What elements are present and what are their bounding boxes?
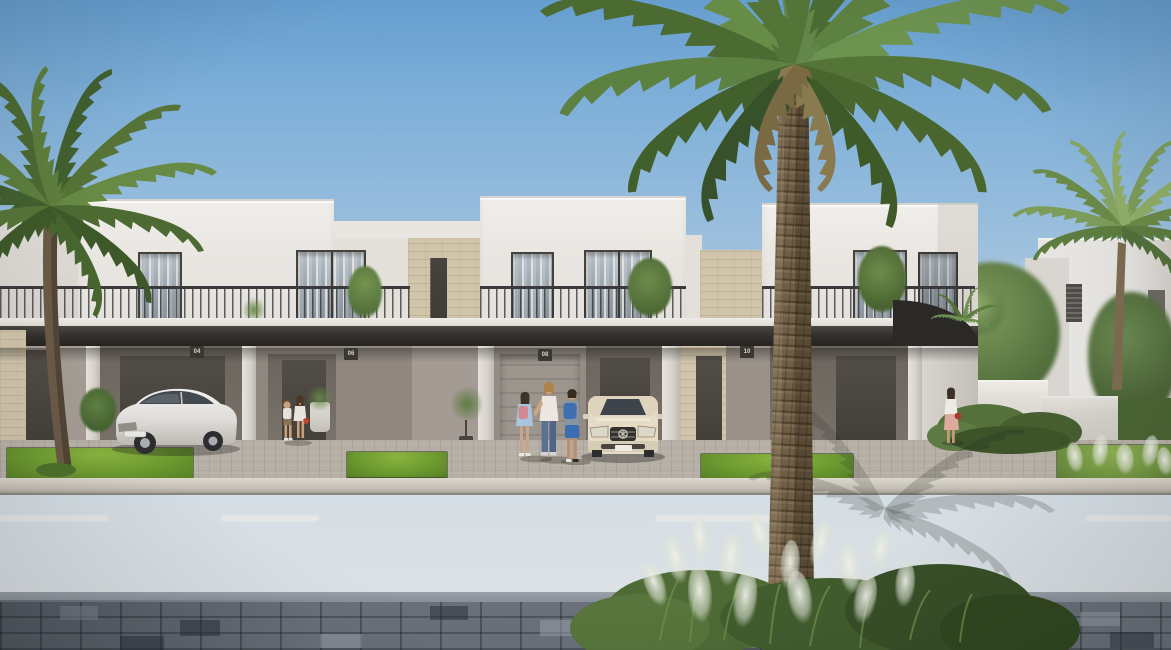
ornamental-grasses	[570, 434, 1171, 650]
sedan-car	[112, 389, 240, 456]
toddler-group	[283, 396, 312, 447]
organic-overlay	[0, 0, 1171, 650]
street-scene: 04 06 08 10	[0, 0, 1171, 650]
family-group	[516, 382, 591, 465]
right-palm-tree	[1012, 130, 1171, 390]
center-palm-tree	[534, 0, 1076, 600]
mercedes-car	[581, 396, 665, 463]
curbside-plume-grass	[1064, 434, 1171, 478]
